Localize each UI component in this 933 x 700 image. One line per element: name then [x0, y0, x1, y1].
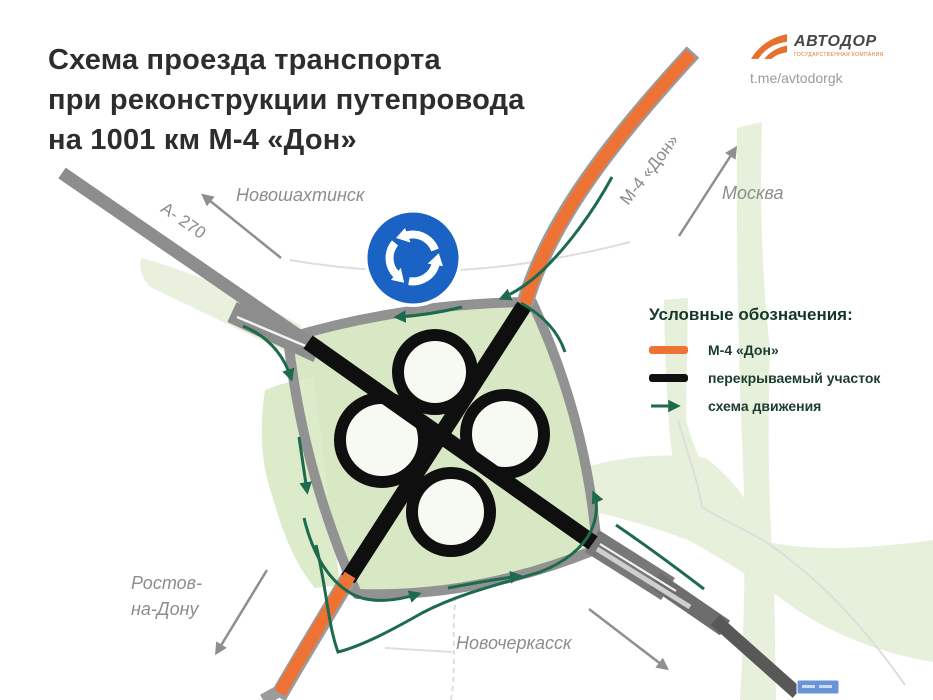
cloverleaf-loop — [412, 473, 490, 551]
legend-item-movement: схема движения — [649, 392, 880, 420]
legend-item-closed: перекрываемый участок — [649, 364, 880, 392]
legend-item-label: М-4 «Дон» — [708, 342, 779, 358]
city-label-rostov: Ростов- на-Дону — [131, 570, 202, 622]
city-label-moscow: Москва — [722, 183, 784, 204]
title-line: Схема проезда транспорта — [48, 40, 525, 80]
title-line: на 1001 км М-4 «Дон» — [48, 120, 525, 160]
city-label-novocherkassk: Новочеркасск — [456, 633, 572, 654]
city-label-line: Ростов- — [131, 570, 202, 596]
legend-item-m4: М-4 «Дон» — [649, 336, 880, 364]
scheme-infographic: Схема проезда транспорта при реконструкц… — [0, 0, 933, 700]
m4-line-swatch — [649, 346, 688, 354]
legend-item-label: схема движения — [708, 398, 821, 414]
novocherkassk-arrow — [589, 609, 666, 668]
page-title: Схема проезда транспорта при реконструкц… — [48, 40, 525, 160]
closed-line-swatch — [649, 374, 688, 382]
legend-title: Условные обозначения: — [649, 305, 880, 325]
movement-arrow-icon — [649, 399, 689, 413]
brand-name: АВТОДОР — [794, 33, 884, 51]
road-number-badge — [797, 680, 839, 694]
avtodor-brand: АВТОДОР ГОСУДАРСТВЕННАЯ КОМПАНИЯ t.me/av… — [750, 33, 920, 86]
brand-subtitle: ГОСУДАРСТВЕННАЯ КОМПАНИЯ — [794, 52, 884, 58]
rostov-arrow — [217, 570, 267, 652]
title-line: при реконструкции путепровода — [48, 80, 525, 120]
city-label-line: на-Дону — [131, 596, 202, 622]
telegram-handle: t.me/avtodorgk — [750, 70, 920, 86]
legend: Условные обозначения: М-4 «Дон» перекрыв… — [649, 305, 880, 420]
legend-item-label: перекрываемый участок — [708, 370, 880, 386]
avtodor-logo-icon — [750, 33, 788, 65]
city-label-novoshakhtinsk: Новошахтинск — [236, 185, 364, 206]
roundabout-sign-icon — [364, 209, 462, 307]
